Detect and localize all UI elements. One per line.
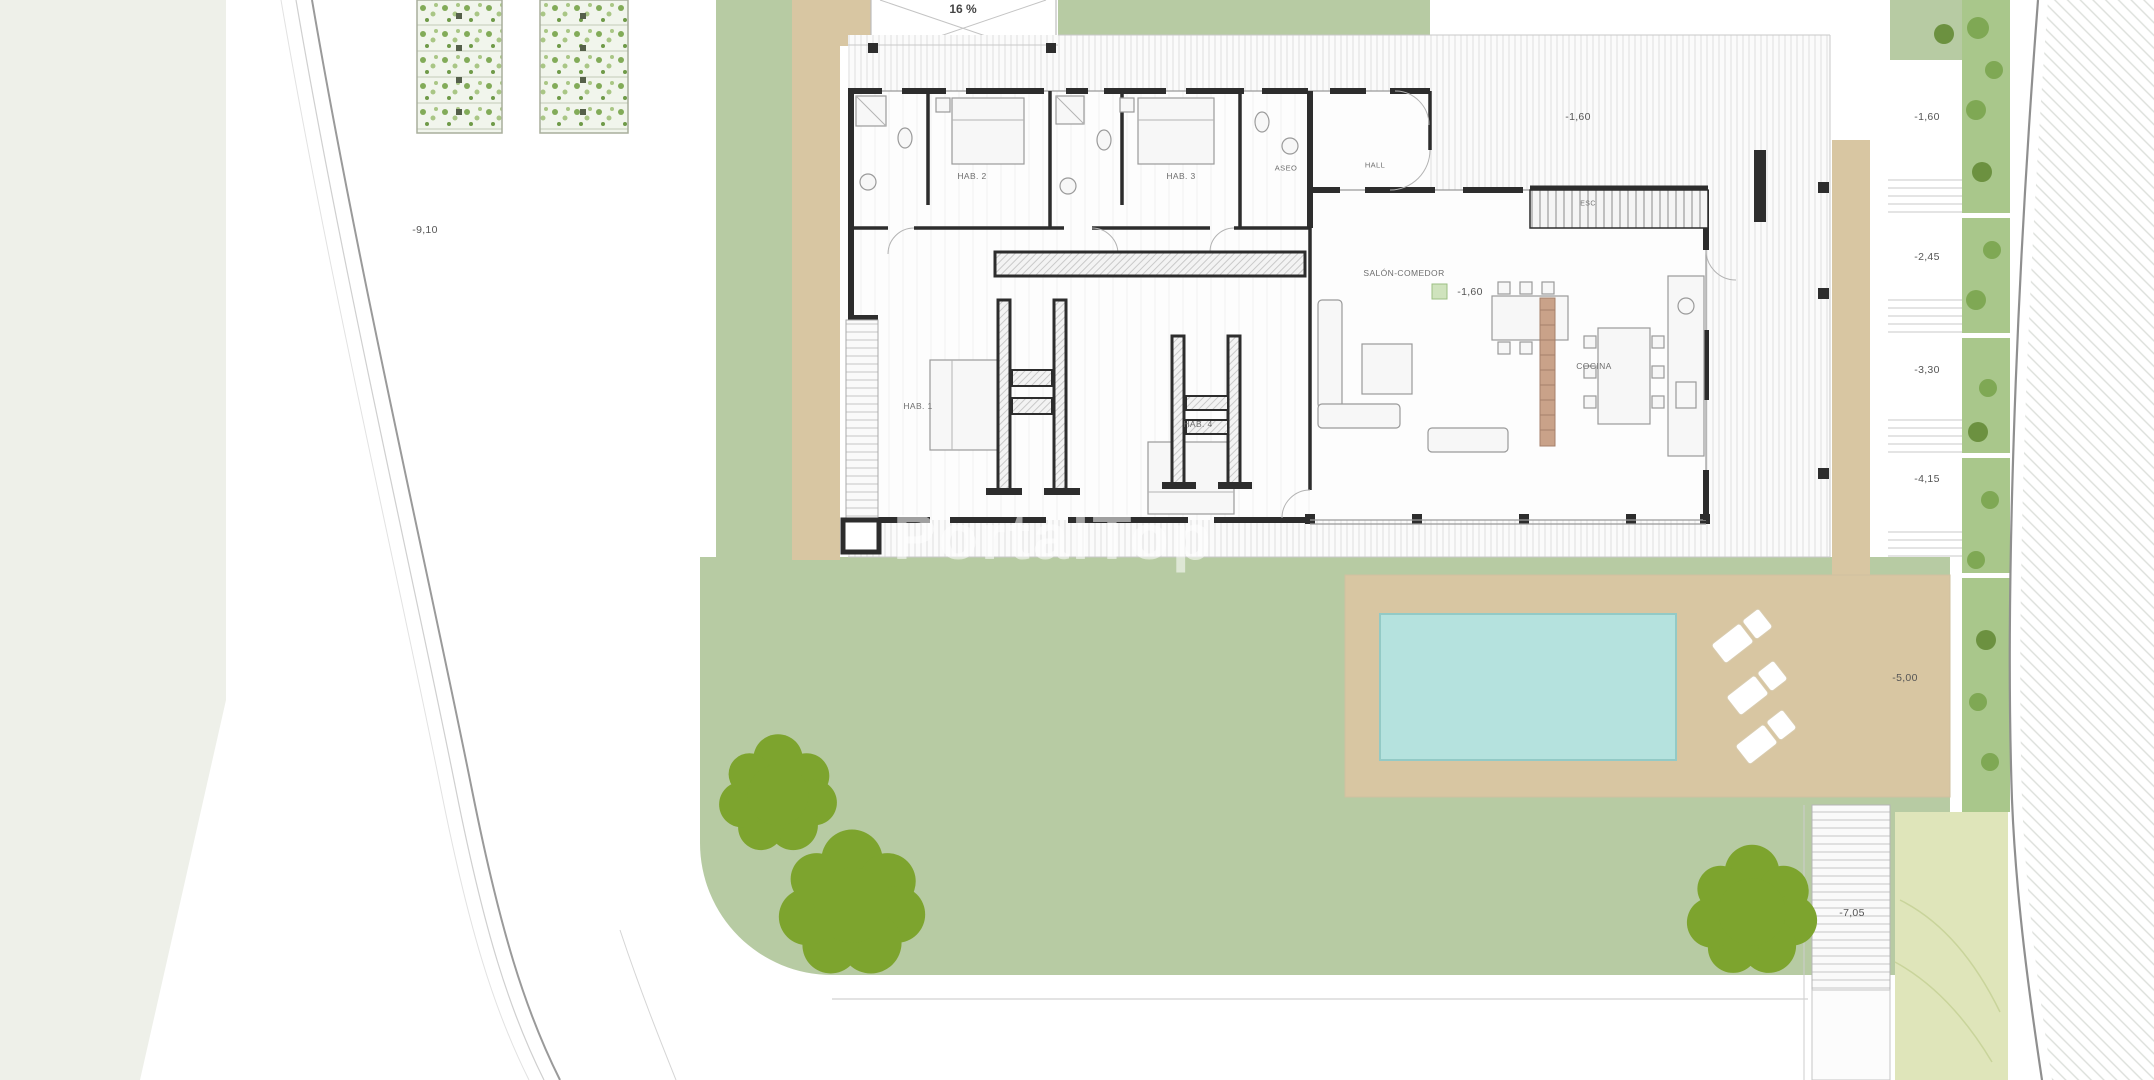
elevation-terrace-4: -4,15 — [1914, 473, 1939, 485]
room-label-hab1: HAB. 1 — [903, 401, 932, 411]
elevation-terrace-2: -2,45 — [1914, 251, 1939, 263]
room-label-hab4: HAB. 4 — [1183, 419, 1212, 429]
room-label-hab2: HAB. 2 — [957, 171, 986, 181]
room-label-hab3: HAB. 3 — [1166, 171, 1195, 181]
room-label-esc: ESC — [1580, 201, 1596, 208]
elevation-terrace-1: -1,60 — [1914, 111, 1939, 123]
room-label-salon: SALÓN-COMEDOR — [1363, 268, 1444, 278]
elevation-left: -9,10 — [412, 224, 437, 236]
ramp-slope-label: 16 % — [949, 2, 976, 16]
room-label-hall: HALL — [1365, 161, 1385, 170]
elevation-terrace-3: -3,30 — [1914, 364, 1939, 376]
elevation-pool: -5,00 — [1892, 672, 1917, 684]
room-label-cocina: COCINA — [1576, 361, 1611, 371]
site-plan: 16 % -9,10 -1,60 -1,60 -1,60 -2,45 -3,30… — [0, 0, 2154, 1080]
room-label-aseo: ASEO — [1275, 164, 1297, 173]
elevation-lower: -7,05 — [1839, 907, 1864, 919]
elevation-salon: -1,60 — [1457, 286, 1482, 298]
elevation-deck: -1,60 — [1565, 111, 1590, 123]
watermark: PortalTop — [893, 500, 1214, 574]
